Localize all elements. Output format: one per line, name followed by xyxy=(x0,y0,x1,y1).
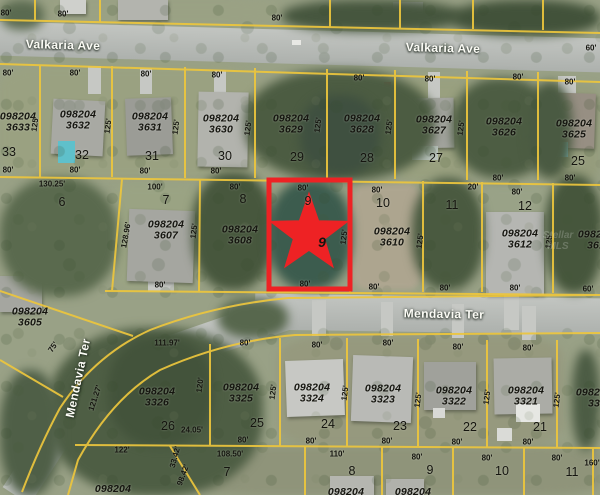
star-icon xyxy=(273,196,345,265)
highlighted-parcel[interactable] xyxy=(0,0,600,495)
parcel-map[interactable]: Valkaria Ave Valkaria Ave Mendavia Ter M… xyxy=(0,0,600,495)
